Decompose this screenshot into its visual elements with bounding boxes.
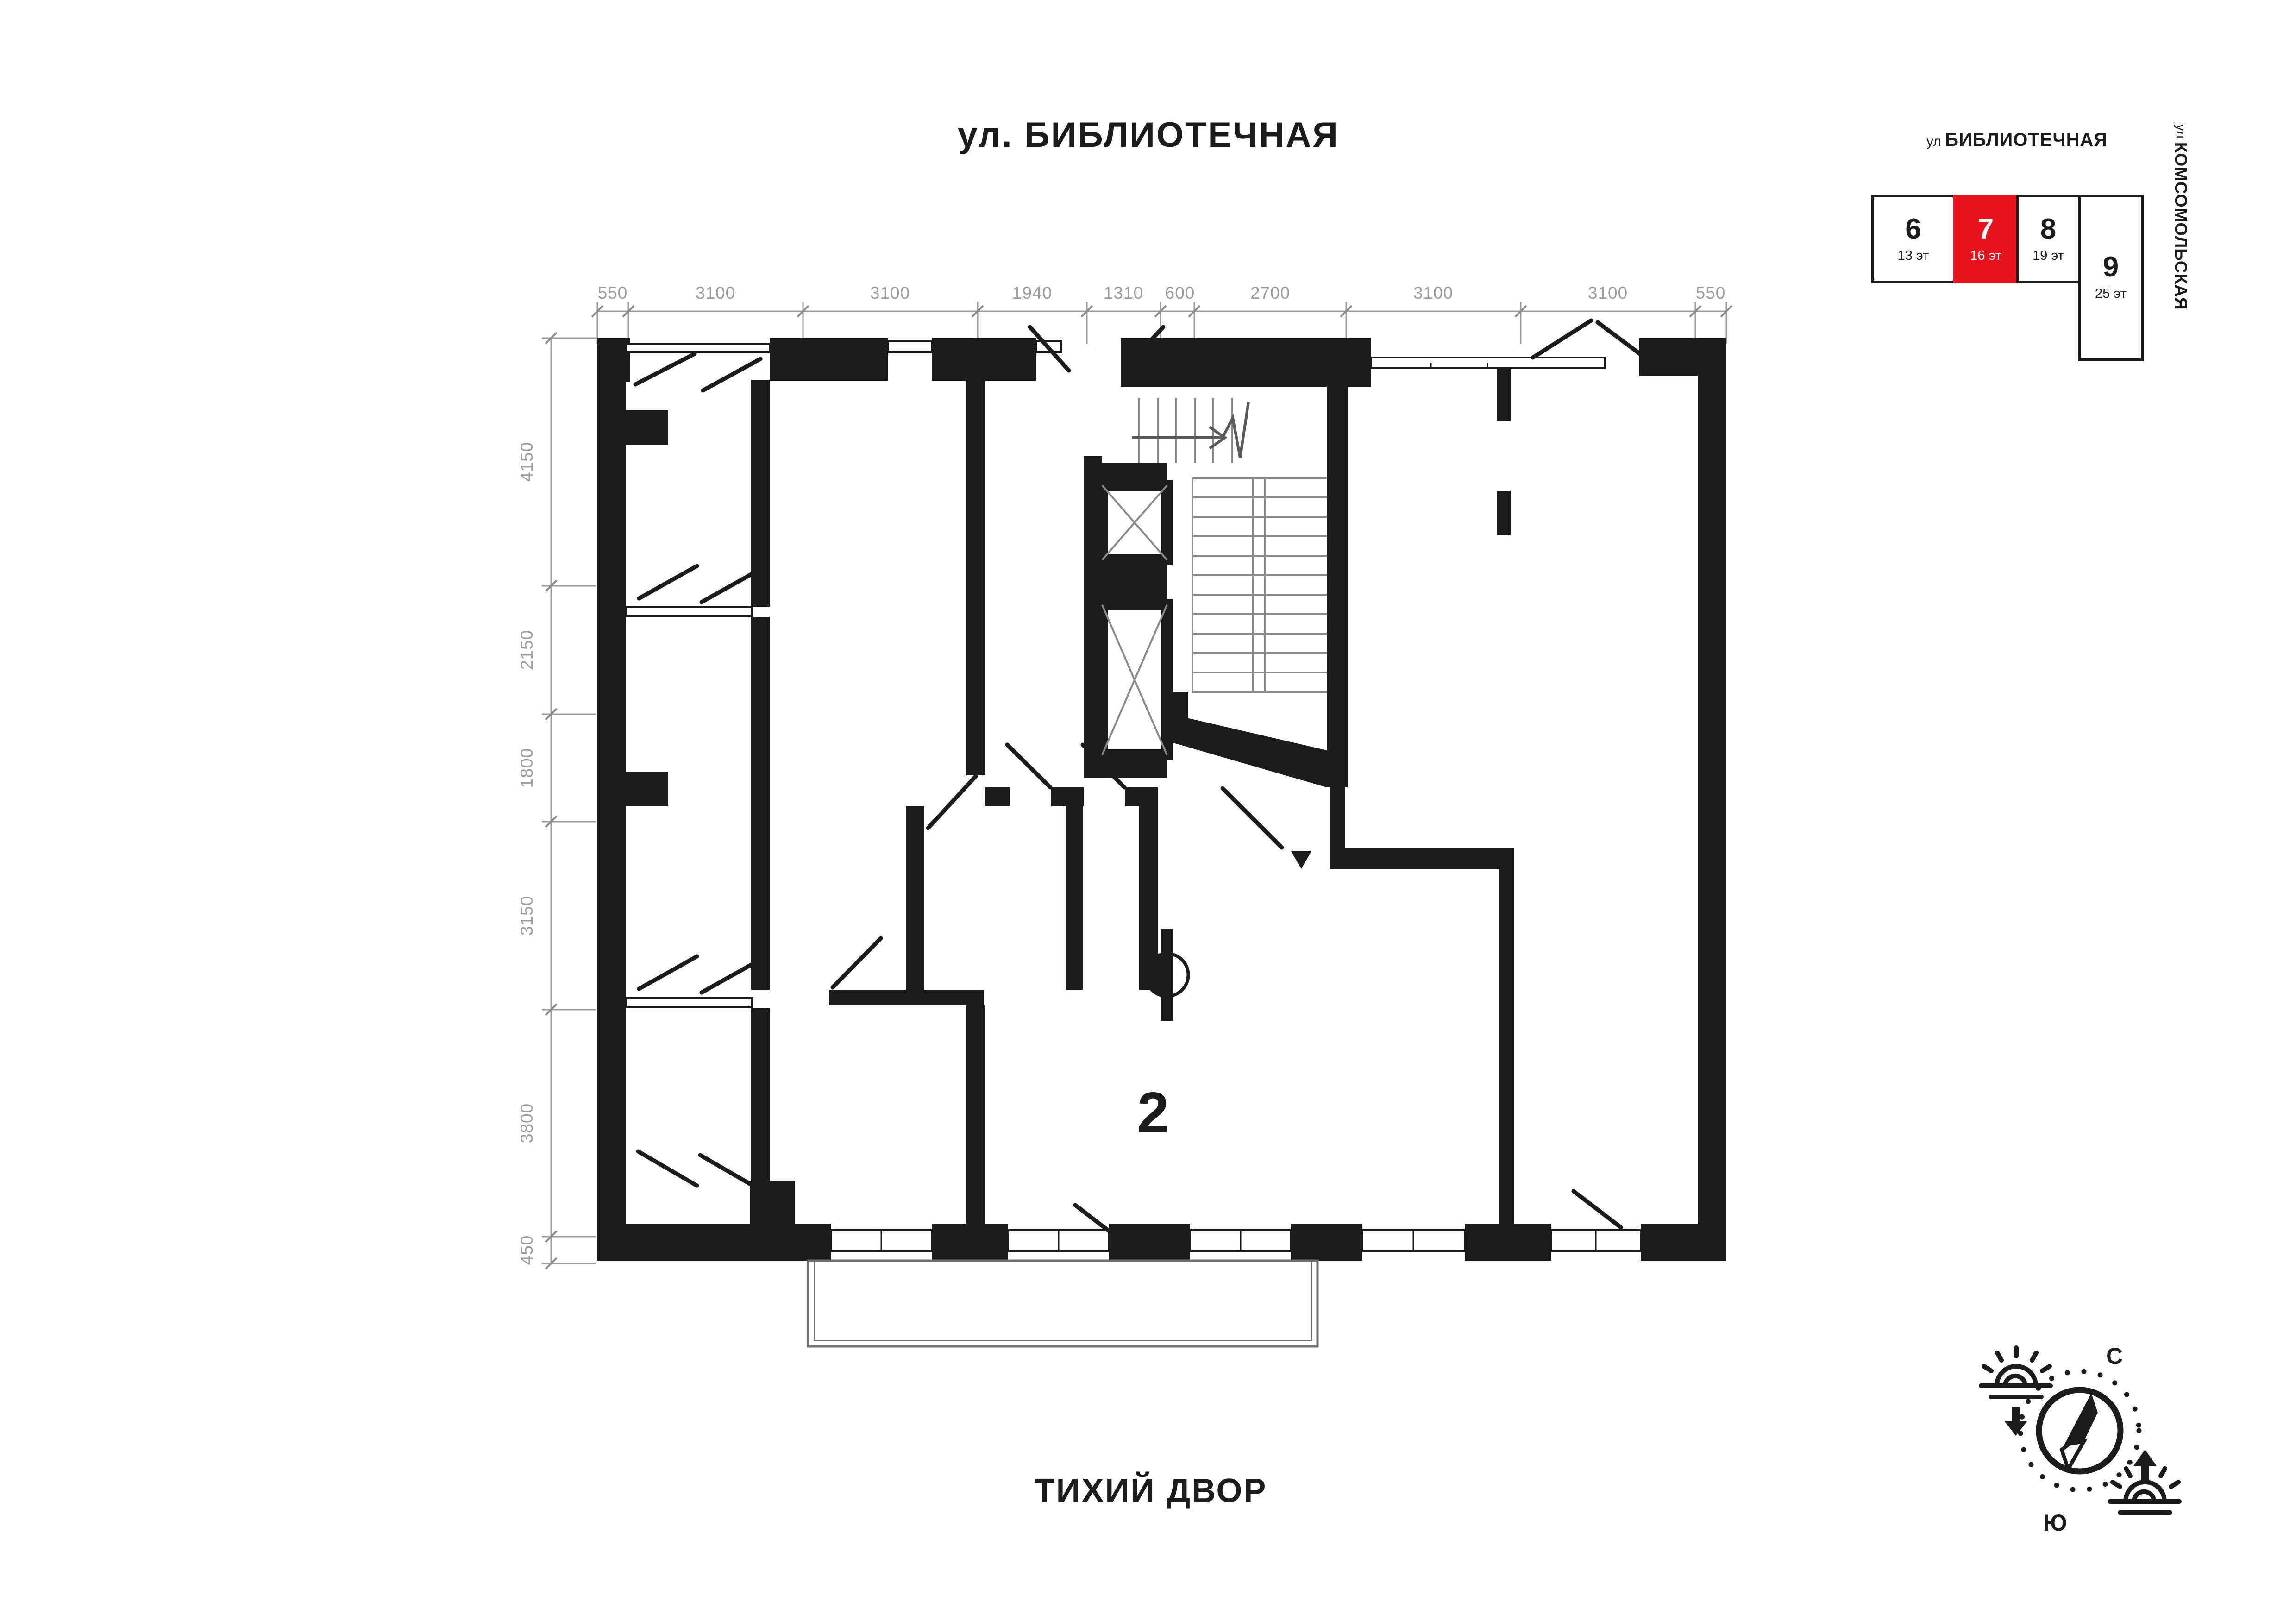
minimap-building-7[interactable]: 7 16 эт [1953, 195, 2019, 283]
street-name: БИБЛИОТЕЧНАЯ [1945, 130, 2108, 150]
dim-label: 550 [1696, 283, 1726, 302]
interior-walls [626, 369, 1514, 1224]
dimension-labels-left: 4150 2150 1800 3150 3800 450 [517, 442, 536, 1265]
location-minimap: ул БИБЛИОТЕЧНАЯ ул КОМСОМОЛЬСКАЯ 6 13 эт… [1871, 111, 2278, 713]
dim-label: 3800 [517, 1103, 536, 1143]
minimap-building-6[interactable]: 6 13 эт [1871, 195, 1956, 283]
entrance-marker-icon [1291, 851, 1311, 869]
building-number: 9 [2103, 253, 2119, 282]
dim-label: 550 [598, 283, 628, 302]
dim-label: 1310 [1104, 283, 1143, 302]
dim-label: 2150 [517, 630, 536, 670]
dim-label: 450 [517, 1235, 536, 1265]
minimap-building-9[interactable]: 9 25 эт [2078, 195, 2144, 361]
street-prefix: ул [1926, 134, 1945, 149]
dim-label: 4150 [517, 442, 536, 482]
street-prefix: ул [2173, 124, 2188, 142]
dim-label: 3150 [517, 896, 536, 936]
dim-label: 3100 [1413, 283, 1453, 302]
building-number: 8 [2040, 215, 2056, 244]
balcony-outline [808, 1261, 1317, 1346]
dim-label: 1940 [1012, 283, 1052, 302]
building-floors: 25 эт [2095, 286, 2127, 302]
dim-label: 600 [1165, 283, 1195, 302]
dim-label: 1800 [517, 748, 536, 788]
dim-label: 3100 [870, 283, 910, 302]
street-name: КОМСОМОЛЬСКАЯ [2171, 142, 2190, 310]
minimap-street-right: ул КОМСОМОЛЬСКАЯ [2171, 124, 2190, 310]
dim-label: 3100 [1588, 283, 1628, 302]
elevator-shafts [1102, 485, 1167, 755]
floorplan-page: ул. БИБЛИОТЕЧНАЯ ТИХИЙ ДВОР [0, 0, 2296, 1621]
building-floors: 19 эт [2033, 248, 2064, 264]
dim-label: 2700 [1250, 283, 1290, 302]
building-floors: 13 эт [1898, 248, 1929, 264]
building-number: 7 [1978, 215, 1994, 244]
minimap-building-8[interactable]: 8 19 эт [2016, 195, 2081, 283]
dimension-labels-top: 550 3100 3100 1940 1310 600 2700 3100 31… [598, 283, 1726, 302]
building-number: 6 [1905, 215, 1921, 244]
dim-label: 3100 [696, 283, 735, 302]
minimap-street-top: ул БИБЛИОТЕЧНАЯ [1926, 130, 2108, 151]
apartment-number: 2 [1137, 1081, 1169, 1145]
building-floors: 16 эт [1970, 248, 2001, 264]
